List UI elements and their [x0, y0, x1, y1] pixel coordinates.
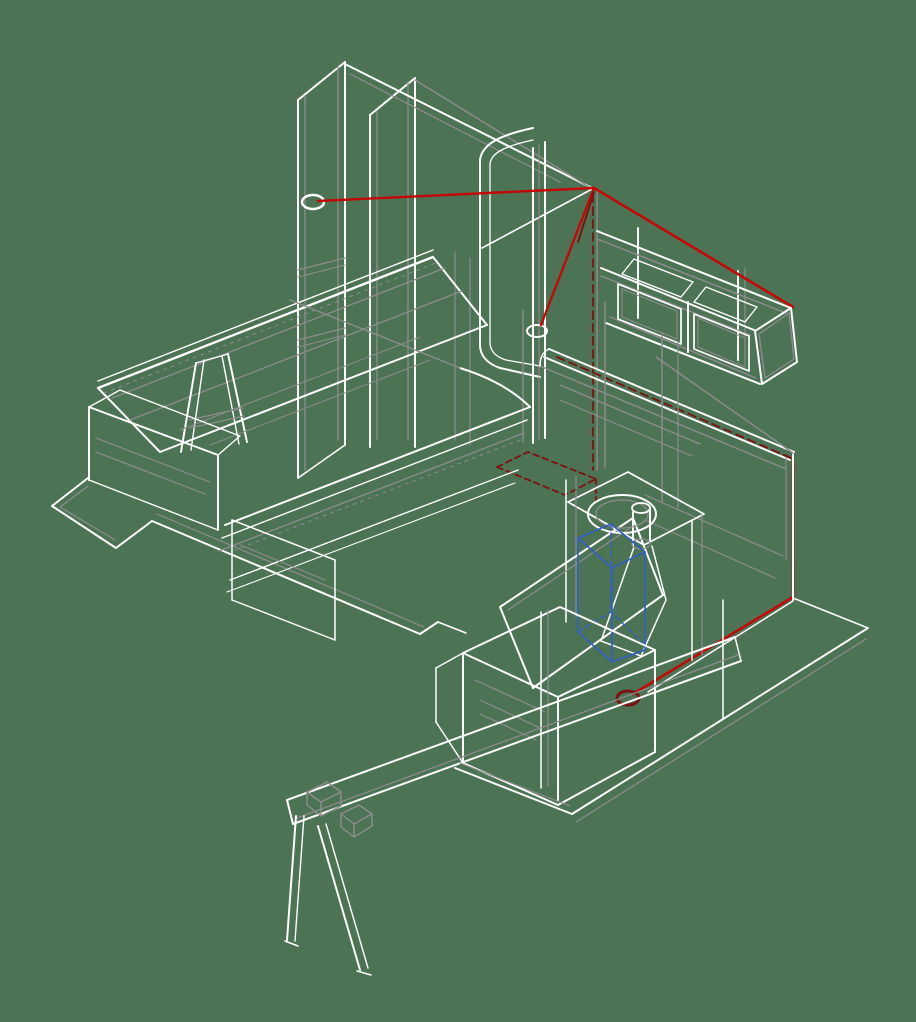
- cad-viewport: [0, 0, 916, 1022]
- wireframe-svg: [0, 0, 916, 1022]
- background: [0, 0, 916, 1022]
